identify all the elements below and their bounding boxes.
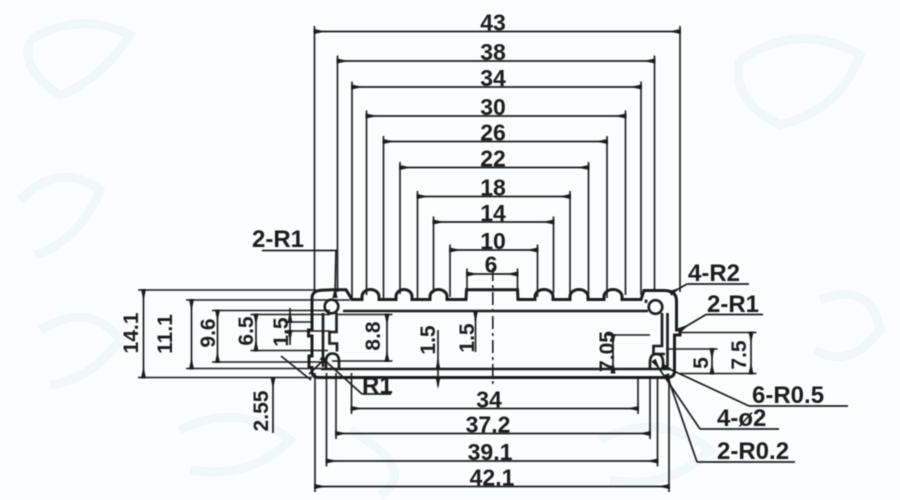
svg-text:2-R0.2: 2-R0.2 bbox=[717, 438, 789, 465]
svg-text:8.8: 8.8 bbox=[362, 321, 385, 351]
svg-text:4-ø2: 4-ø2 bbox=[717, 405, 766, 432]
svg-text:30: 30 bbox=[480, 94, 506, 120]
svg-text:9.6: 9.6 bbox=[197, 318, 220, 347]
svg-text:18: 18 bbox=[480, 175, 506, 201]
svg-text:22: 22 bbox=[480, 146, 506, 172]
svg-text:1.5: 1.5 bbox=[417, 325, 440, 355]
svg-text:38: 38 bbox=[480, 39, 506, 65]
svg-text:R1: R1 bbox=[362, 373, 393, 400]
svg-text:6: 6 bbox=[485, 252, 498, 278]
svg-text:34: 34 bbox=[476, 387, 502, 413]
svg-text:10: 10 bbox=[480, 228, 506, 254]
svg-text:2-R1: 2-R1 bbox=[707, 291, 759, 318]
svg-text:34: 34 bbox=[480, 65, 506, 91]
svg-text:26: 26 bbox=[480, 120, 506, 146]
svg-text:1.5: 1.5 bbox=[456, 323, 479, 353]
svg-text:39.1: 39.1 bbox=[468, 439, 513, 465]
svg-text:7.05: 7.05 bbox=[596, 331, 619, 372]
svg-text:1.5: 1.5 bbox=[270, 317, 293, 347]
svg-text:43: 43 bbox=[480, 10, 506, 36]
svg-text:2-R1: 2-R1 bbox=[252, 226, 304, 253]
svg-text:6.5: 6.5 bbox=[235, 316, 258, 346]
svg-text:14: 14 bbox=[480, 200, 506, 226]
svg-text:37.2: 37.2 bbox=[466, 412, 511, 438]
svg-text:4-R2: 4-R2 bbox=[688, 260, 740, 287]
svg-text:42.1: 42.1 bbox=[470, 465, 515, 491]
svg-text:11.1: 11.1 bbox=[154, 314, 177, 354]
svg-text:5: 5 bbox=[690, 357, 713, 369]
svg-text:14.1: 14.1 bbox=[120, 312, 143, 353]
svg-text:7.5: 7.5 bbox=[728, 340, 751, 370]
svg-text:2.55: 2.55 bbox=[250, 390, 273, 431]
